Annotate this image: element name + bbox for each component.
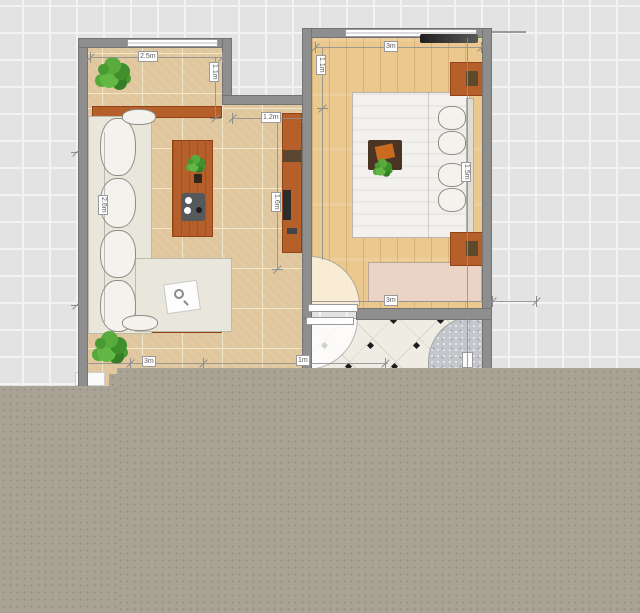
dim-label-bedroom-top: 3m bbox=[384, 41, 398, 52]
overlay-block-step bbox=[109, 374, 117, 386]
dim-tick bbox=[71, 300, 82, 311]
dim-line-bedroom-top bbox=[315, 47, 482, 48]
dim-tick bbox=[317, 103, 328, 114]
living-window bbox=[127, 39, 218, 47]
dim-extension-line bbox=[492, 31, 526, 33]
dim-tick bbox=[71, 147, 82, 158]
overlay-block-main bbox=[117, 368, 640, 613]
wall-bedroom-left bbox=[302, 28, 312, 320]
tray-cup bbox=[184, 207, 191, 214]
dim-label-living-top-side: 1.1m bbox=[209, 62, 219, 82]
dim-tick bbox=[300, 113, 311, 124]
dim-label-passage: 1.2m bbox=[261, 112, 281, 123]
table-plant bbox=[187, 158, 193, 164]
tray-cup bbox=[185, 197, 192, 204]
bed-duvet-fold bbox=[428, 92, 429, 238]
overlay-block-left bbox=[0, 386, 117, 613]
coffee-table[interactable] bbox=[172, 140, 213, 237]
dim-line-bedroom-left bbox=[322, 47, 323, 260]
sofa-pillow bbox=[100, 230, 136, 278]
dim-label-sofa: 2.6m bbox=[98, 195, 108, 215]
bed-pillow bbox=[438, 106, 466, 130]
dim-tick bbox=[476, 42, 487, 53]
ac-unit[interactable] bbox=[420, 34, 478, 43]
sofa-pillow-small-bottom bbox=[122, 315, 158, 331]
dim-line-bed bbox=[467, 38, 468, 368]
dim-tick bbox=[310, 42, 321, 53]
dim-label-cabinet: 1.6m bbox=[271, 192, 281, 212]
dim-label-bathroom: 3m bbox=[384, 295, 398, 306]
bathroom-door-leaf[interactable] bbox=[306, 317, 354, 325]
table-plant-pot bbox=[194, 174, 202, 183]
bedroom-door-leaf[interactable] bbox=[308, 304, 358, 312]
dim-tick bbox=[227, 113, 238, 124]
tray-cup-dark bbox=[196, 207, 202, 213]
dim-line-sofa bbox=[104, 132, 105, 322]
bed-pillow bbox=[438, 188, 466, 212]
dim-label-living-bottom-right: 1m bbox=[296, 355, 310, 366]
dim-label-living-bottom: 3m bbox=[142, 356, 156, 367]
tv-screen bbox=[283, 190, 291, 220]
cabinet-shelf bbox=[283, 150, 301, 162]
corner-plant-top[interactable] bbox=[98, 64, 109, 75]
dim-label-living-top: 2.5m bbox=[138, 51, 158, 62]
sofa-pillow bbox=[100, 118, 136, 176]
cabinet-decor bbox=[287, 228, 297, 234]
dim-line-bathroom bbox=[312, 301, 538, 302]
dim-tick bbox=[210, 113, 221, 124]
bed-pillow bbox=[438, 131, 466, 155]
sofa-pillow-small-top bbox=[122, 109, 156, 125]
wall-living-left bbox=[78, 38, 88, 388]
dim-tick bbox=[487, 296, 498, 307]
wall-bed-bath-divider bbox=[356, 308, 492, 320]
dim-tick bbox=[85, 52, 96, 63]
magnifier-icon bbox=[174, 289, 184, 299]
floor-plan-canvas[interactable]: 2.5m 1.1m 1.2m 1.6m 2.6m 3m 1m 3m 1.1m 1… bbox=[0, 0, 640, 613]
bed-plant-sprig bbox=[374, 162, 380, 168]
dim-label-bedroom-left: 1.1m bbox=[316, 55, 326, 75]
dim-tick bbox=[272, 264, 283, 275]
dim-tick bbox=[531, 296, 542, 307]
dim-label-bed: 1.5m bbox=[461, 162, 471, 182]
corner-plant-bottom[interactable] bbox=[95, 338, 106, 349]
wall-mid-top bbox=[222, 95, 312, 105]
